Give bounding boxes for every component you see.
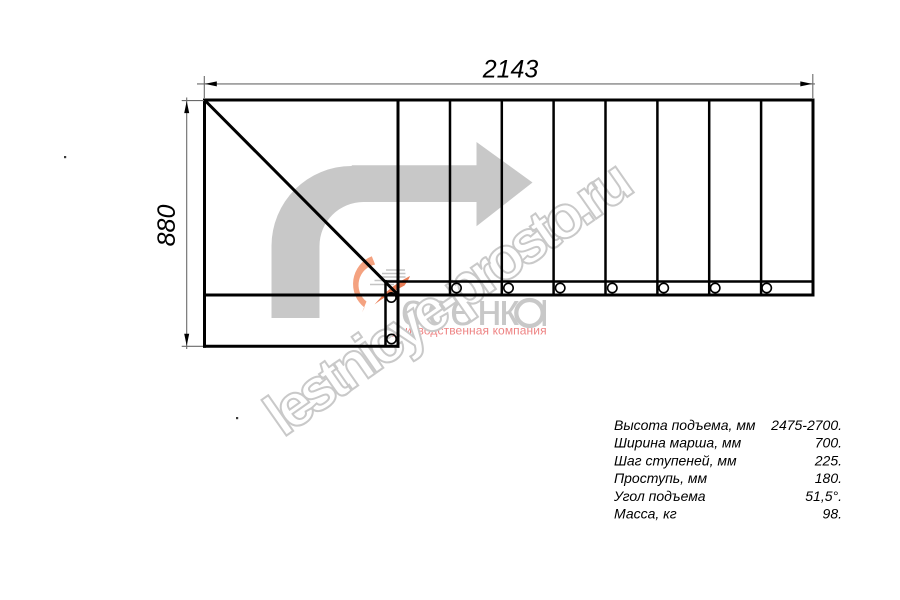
svg-text:2143: 2143 bbox=[482, 56, 539, 84]
svg-text:2475-2700.: 2475-2700. bbox=[770, 417, 842, 433]
svg-text:51,5°.: 51,5°. bbox=[805, 488, 842, 504]
svg-text:Угол подъема: Угол подъема bbox=[613, 488, 706, 504]
svg-text:180.: 180. bbox=[815, 470, 842, 486]
svg-text:Шаг ступеней, мм: Шаг ступеней, мм bbox=[614, 452, 737, 468]
svg-text:225.: 225. bbox=[814, 452, 842, 468]
svg-text:700.: 700. bbox=[815, 435, 842, 451]
svg-text:Высота подъема, мм: Высота подъема, мм bbox=[614, 417, 756, 433]
svg-text:98.: 98. bbox=[823, 506, 842, 522]
svg-text:Ширина марша, мм: Ширина марша, мм bbox=[614, 435, 742, 451]
svg-text:880: 880 bbox=[153, 205, 181, 247]
svg-text:Масса, кг: Масса, кг bbox=[614, 506, 677, 522]
svg-text:Проступь, мм: Проступь, мм bbox=[614, 470, 708, 486]
